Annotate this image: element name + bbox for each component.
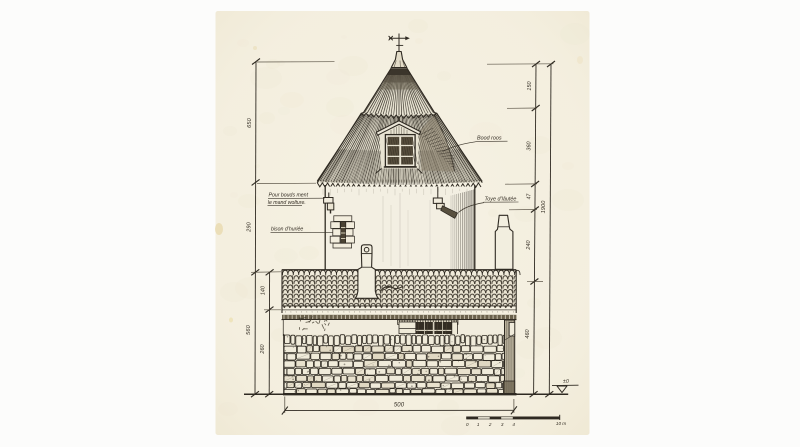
svg-text:460: 460 xyxy=(525,329,531,338)
svg-text:±0: ±0 xyxy=(563,379,569,385)
svg-text:bison d’huriée: bison d’huriée xyxy=(271,227,303,233)
svg-text:3: 3 xyxy=(501,422,504,427)
svg-text:Toye d’lâutée: Toye d’lâutée xyxy=(485,196,517,202)
svg-text:Bood roos: Bood roos xyxy=(477,135,502,141)
svg-text:47: 47 xyxy=(527,194,533,200)
svg-text:500: 500 xyxy=(394,402,405,408)
svg-text:150: 150 xyxy=(527,81,533,90)
svg-text:650: 650 xyxy=(247,117,253,127)
svg-text:4: 4 xyxy=(512,422,515,427)
svg-text:560: 560 xyxy=(246,324,252,334)
svg-text:360: 360 xyxy=(526,141,532,150)
svg-text:Pour bouds ment: Pour bouds ment xyxy=(269,193,309,199)
svg-text:1: 1 xyxy=(477,422,480,427)
svg-text:290: 290 xyxy=(246,221,252,232)
svg-text:le mand wolture.: le mand wolture. xyxy=(268,200,306,206)
svg-text:140: 140 xyxy=(261,286,267,295)
svg-text:0: 0 xyxy=(466,422,469,427)
svg-text:260: 260 xyxy=(260,344,266,354)
svg-text:240: 240 xyxy=(526,240,532,250)
svg-text:1900: 1900 xyxy=(541,200,547,214)
svg-text:2: 2 xyxy=(488,422,492,427)
svg-text:10 m: 10 m xyxy=(556,421,566,426)
